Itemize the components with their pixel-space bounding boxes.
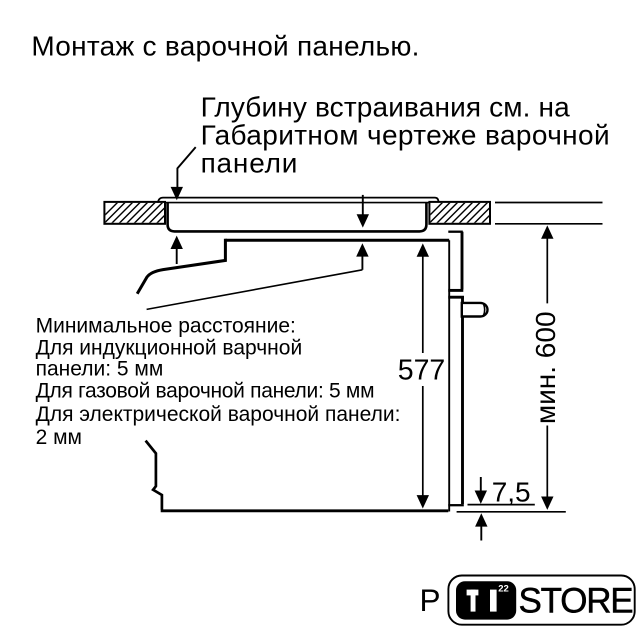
svg-text:Для индукционной варчной: Для индукционной варчной [36, 336, 303, 359]
svg-text:Минимальное расстояние:: Минимальное расстояние: [36, 315, 296, 338]
svg-text:Для газовой варочной панели: 5: Для газовой варочной панели: 5 мм [36, 379, 375, 402]
svg-text:Габаритном чертеже варочной: Габаритном чертеже варочной [201, 120, 610, 151]
svg-text:Монтаж с варочной панелью.: Монтаж с варочной панелью. [31, 30, 419, 61]
svg-text:Глубину встраивания см. на: Глубину встраивания см. на [201, 92, 571, 123]
svg-text:7,5: 7,5 [492, 477, 531, 508]
svg-text:STORE: STORE [519, 582, 633, 621]
svg-text:мин. 600: мин. 600 [530, 311, 561, 424]
svg-text:панели: панели [201, 148, 299, 179]
svg-text:панели: 5 мм: панели: 5 мм [36, 358, 164, 381]
svg-text:2 мм: 2 мм [36, 426, 82, 449]
svg-text:Для электрической варочной пан: Для электрической варочной панели: [36, 403, 401, 426]
svg-text:P: P [420, 582, 441, 618]
svg-text:22: 22 [498, 584, 509, 595]
svg-text:577: 577 [398, 355, 446, 387]
